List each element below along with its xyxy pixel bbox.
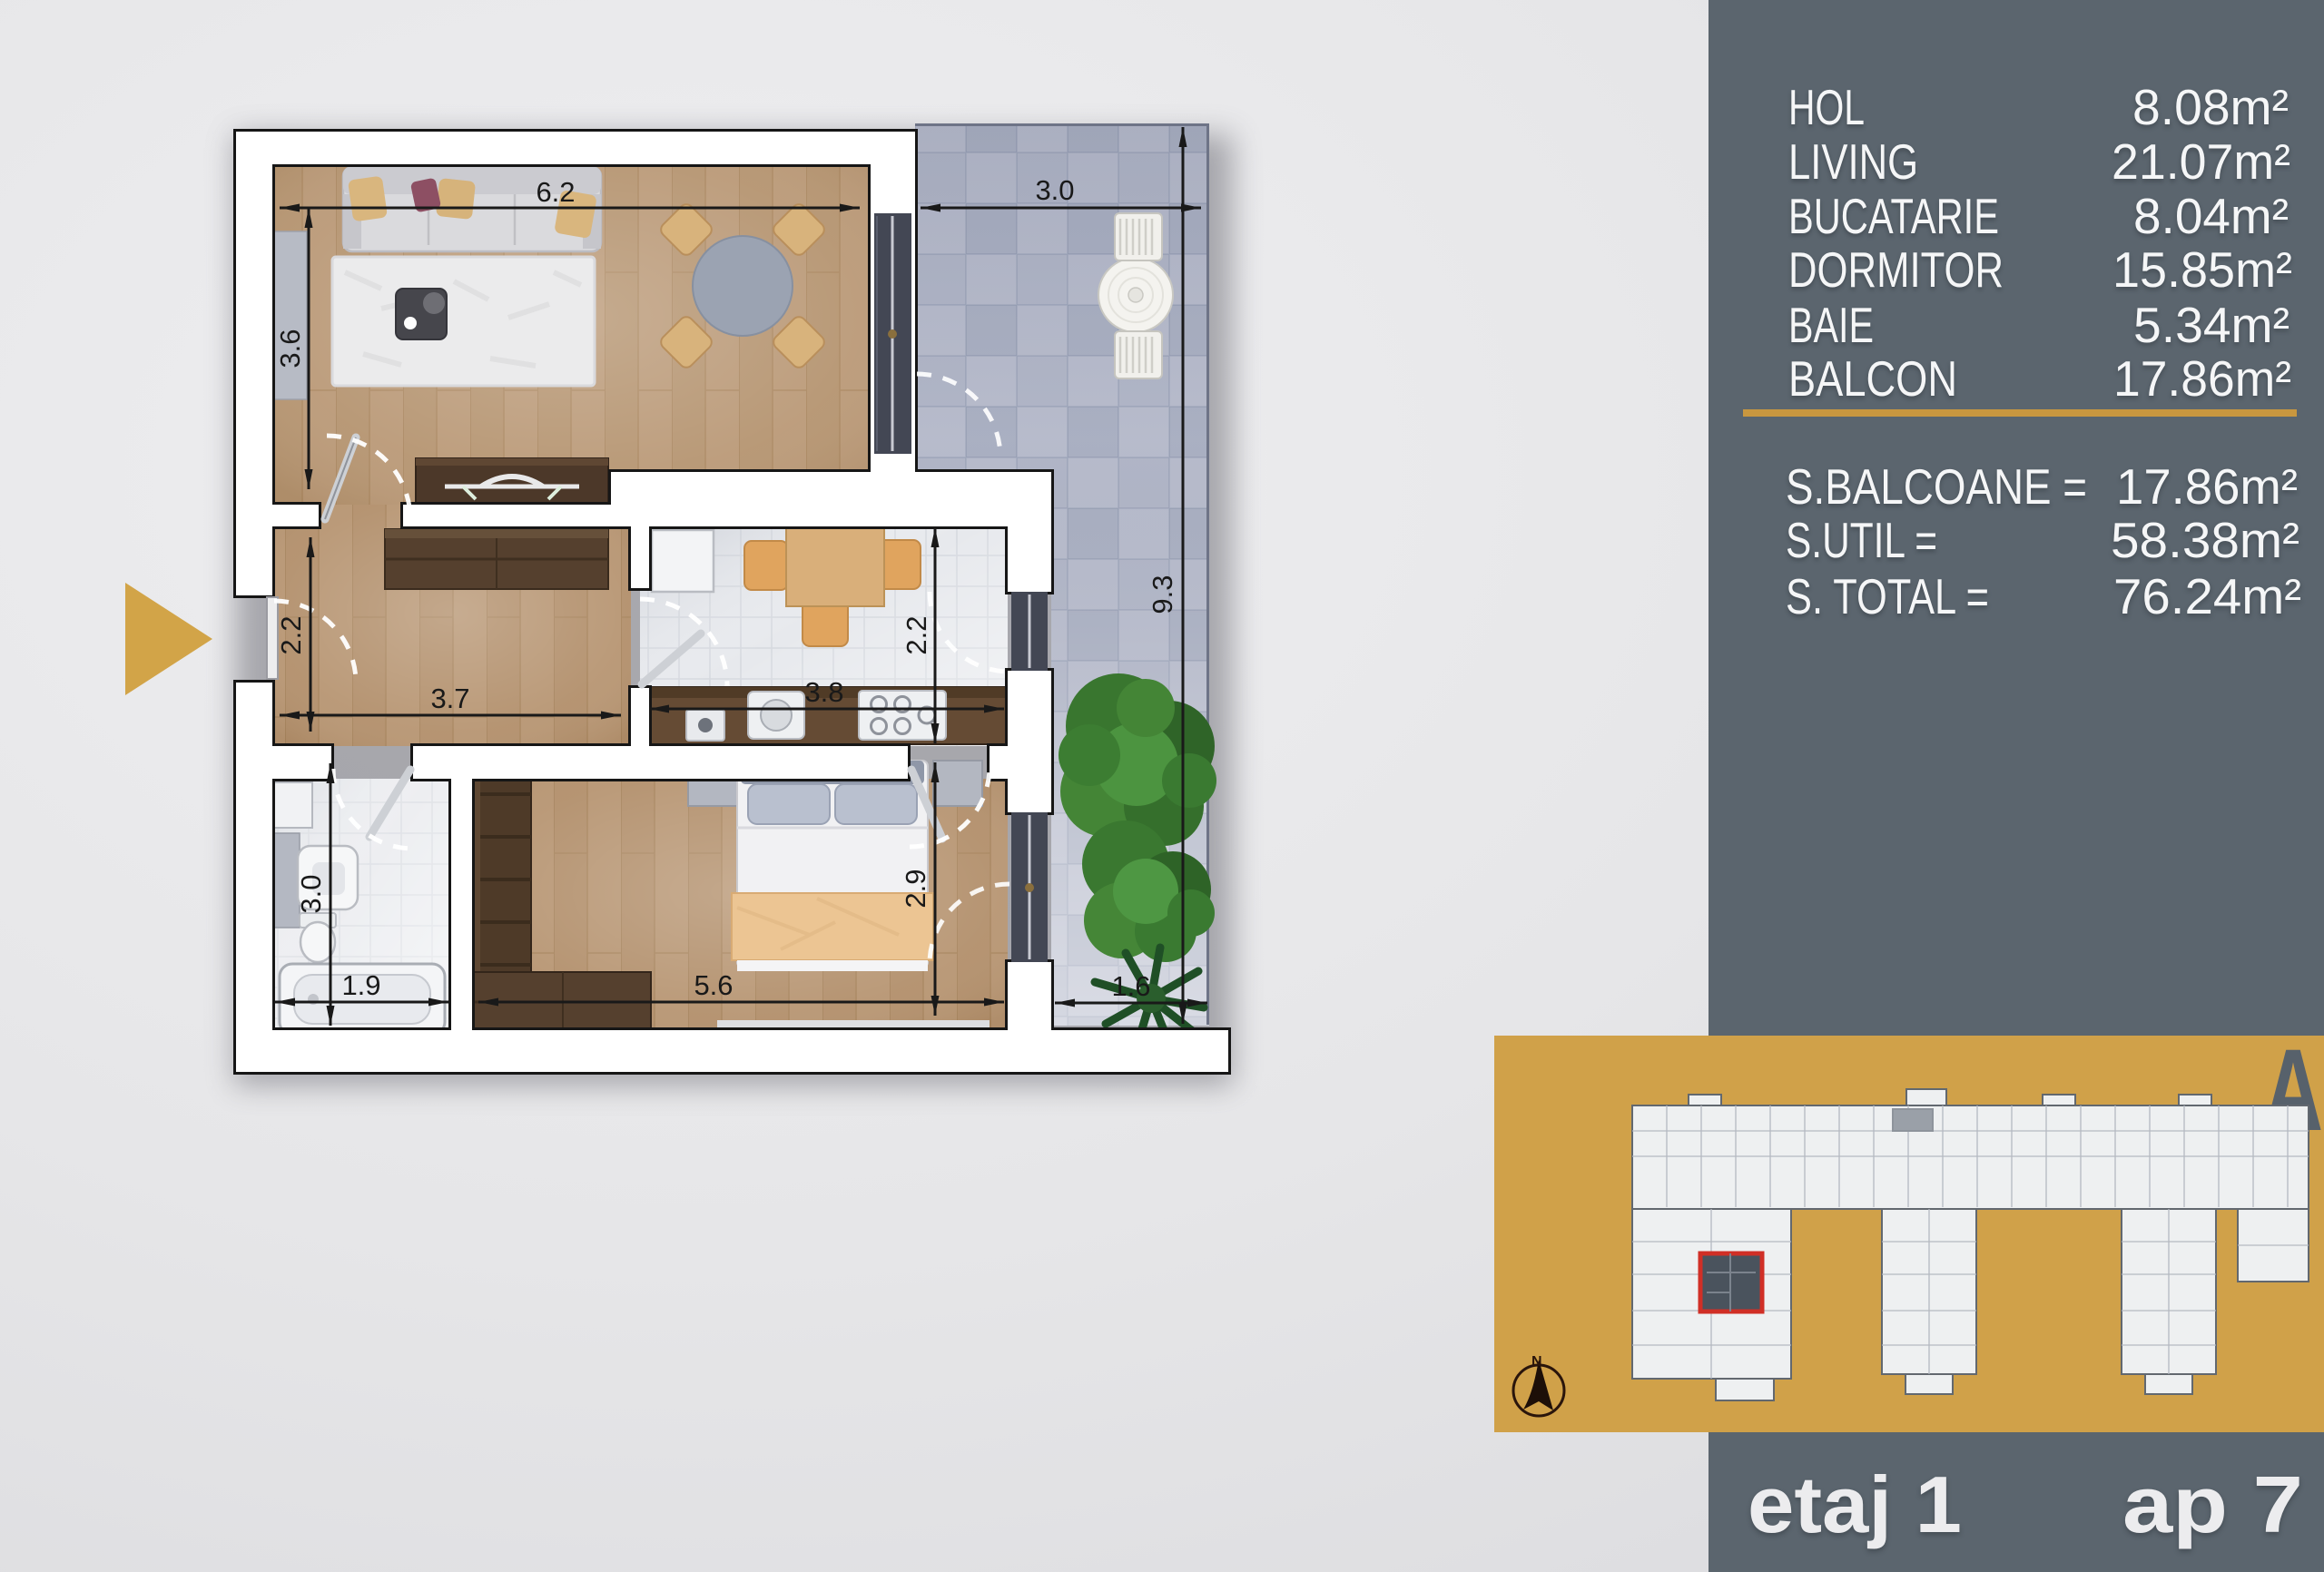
svg-text:76.24m²: 76.24m²	[2113, 568, 2301, 624]
svg-text:5.6: 5.6	[694, 969, 733, 1001]
svg-text:1.6: 1.6	[1111, 970, 1150, 1002]
svg-text:3.8: 3.8	[804, 676, 843, 708]
svg-text:BUCATARIE: BUCATARIE	[1788, 188, 1999, 244]
svg-text:2.2: 2.2	[901, 615, 932, 654]
svg-text:2.9: 2.9	[900, 869, 931, 908]
svg-text:9.3: 9.3	[1147, 575, 1178, 614]
svg-text:1.9: 1.9	[341, 969, 380, 1001]
svg-text:58.38m²: 58.38m²	[2111, 512, 2299, 568]
svg-text:8.04m²: 8.04m²	[2133, 188, 2289, 244]
svg-text:BAIE: BAIE	[1788, 297, 1874, 353]
svg-text:17.86m²: 17.86m²	[2113, 350, 2291, 407]
svg-text:8.08m²: 8.08m²	[2132, 79, 2289, 135]
svg-text:17.86m²: 17.86m²	[2116, 458, 2298, 515]
svg-text:S.BALCOANE =: S.BALCOANE =	[1786, 458, 2087, 515]
svg-text:N: N	[1531, 1354, 1542, 1370]
svg-text:etaj 1: etaj 1	[1748, 1459, 1962, 1549]
svg-text:DORMITOR: DORMITOR	[1788, 241, 2004, 298]
svg-text:2.2: 2.2	[275, 615, 307, 654]
svg-text:21.07m²: 21.07m²	[2112, 133, 2290, 190]
svg-text:HOL: HOL	[1788, 79, 1865, 135]
svg-text:3.0: 3.0	[295, 874, 327, 913]
svg-text:S. TOTAL =: S. TOTAL =	[1786, 568, 1989, 624]
svg-text:6.2: 6.2	[536, 176, 575, 208]
svg-text:3.0: 3.0	[1035, 174, 1074, 206]
svg-text:LIVING: LIVING	[1788, 133, 1918, 190]
svg-text:5.34m²: 5.34m²	[2133, 297, 2290, 353]
svg-text:3.7: 3.7	[430, 683, 469, 714]
svg-text:BALCON: BALCON	[1788, 350, 1957, 407]
svg-text:ap 7: ap 7	[2122, 1459, 2303, 1549]
svg-text:S.UTIL =: S.UTIL =	[1786, 512, 1937, 568]
svg-text:15.85m²: 15.85m²	[2112, 241, 2292, 298]
svg-text:3.6: 3.6	[274, 329, 306, 368]
